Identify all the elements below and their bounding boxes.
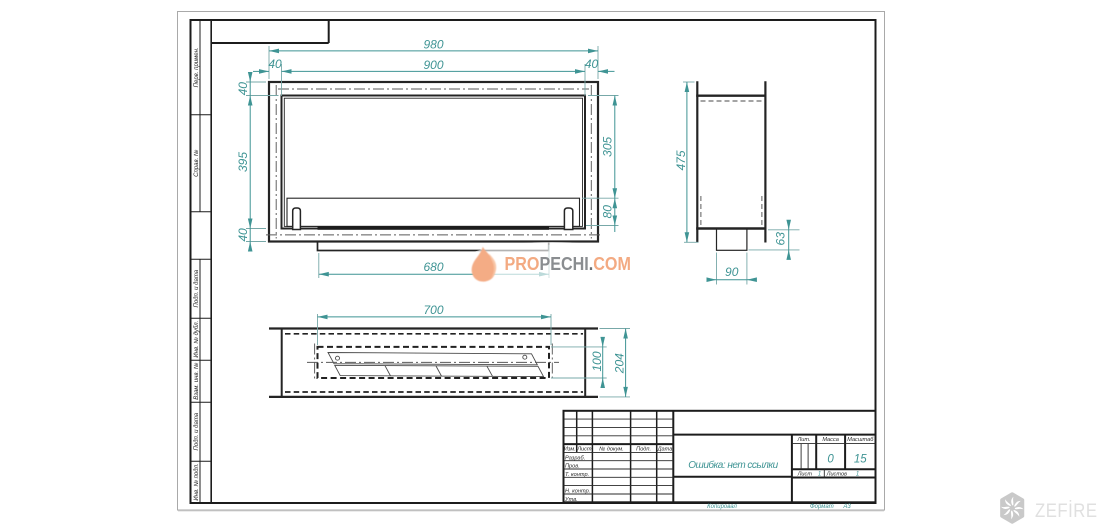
svg-text:А3: А3 — [842, 504, 851, 510]
svg-text:Листов: Листов — [826, 471, 847, 477]
svg-text:Ошибка: нет ссылки: Ошибка: нет ссылки — [688, 459, 778, 471]
svg-text:40: 40 — [236, 228, 250, 242]
svg-text:Копировал: Копировал — [707, 504, 737, 510]
svg-text:1: 1 — [818, 471, 821, 477]
svg-text:680: 680 — [423, 260, 443, 274]
svg-text:80: 80 — [600, 205, 614, 219]
svg-text:40: 40 — [268, 57, 282, 71]
svg-text:Т. контр.: Т. контр. — [565, 472, 589, 478]
svg-text:Н. контр.: Н. контр. — [565, 489, 590, 495]
svg-text:Перв. примен.: Перв. примен. — [194, 47, 200, 87]
svg-text:1: 1 — [856, 471, 859, 477]
svg-text:40: 40 — [585, 57, 599, 71]
svg-text:980: 980 — [423, 38, 443, 52]
svg-text:Лист: Лист — [576, 447, 592, 453]
svg-text:40: 40 — [236, 82, 250, 96]
svg-text:305: 305 — [600, 136, 614, 156]
svg-text:Дата: Дата — [657, 447, 673, 453]
svg-text:395: 395 — [236, 152, 250, 172]
svg-text:Масштаб: Масштаб — [847, 437, 874, 443]
svg-text:Пров.: Пров. — [565, 464, 580, 470]
svg-text:0: 0 — [827, 454, 834, 466]
svg-text:475: 475 — [674, 150, 688, 170]
svg-text:Инв. № дубл.: Инв. № дубл. — [193, 321, 200, 358]
svg-text:ZEFİRE: ZEFİRE — [1035, 500, 1098, 521]
svg-text:Утв.: Утв. — [564, 497, 578, 503]
svg-text:63: 63 — [773, 232, 787, 246]
svg-text:900: 900 — [423, 58, 443, 72]
svg-text:90: 90 — [725, 265, 739, 279]
svg-text:Разраб.: Разраб. — [565, 455, 585, 461]
svg-text:Подп.: Подп. — [636, 447, 651, 453]
svg-text:Лист: Лист — [797, 471, 813, 477]
svg-text:Лит.: Лит. — [796, 437, 810, 443]
svg-text:Формат: Формат — [810, 504, 834, 510]
svg-text:Изм.: Изм. — [564, 447, 576, 453]
svg-text:204: 204 — [613, 353, 627, 374]
svg-text:№ докум.: № докум. — [599, 447, 624, 453]
svg-text:100: 100 — [590, 351, 604, 371]
svg-text:700: 700 — [423, 303, 443, 317]
svg-text:Справ. №: Справ. № — [193, 149, 200, 177]
svg-text:Подп. и дата: Подп. и дата — [194, 412, 200, 450]
svg-text:Подп. и дата: Подп. и дата — [194, 269, 200, 307]
svg-text:15: 15 — [854, 454, 867, 466]
svg-text:Взам. инв. №: Взам. инв. № — [193, 362, 200, 400]
svg-text:Масса: Масса — [822, 437, 839, 443]
svg-text:Инв. № подл.: Инв. № подл. — [193, 463, 200, 500]
svg-text:PROPECHI.COM: PROPECHI.COM — [505, 253, 631, 274]
